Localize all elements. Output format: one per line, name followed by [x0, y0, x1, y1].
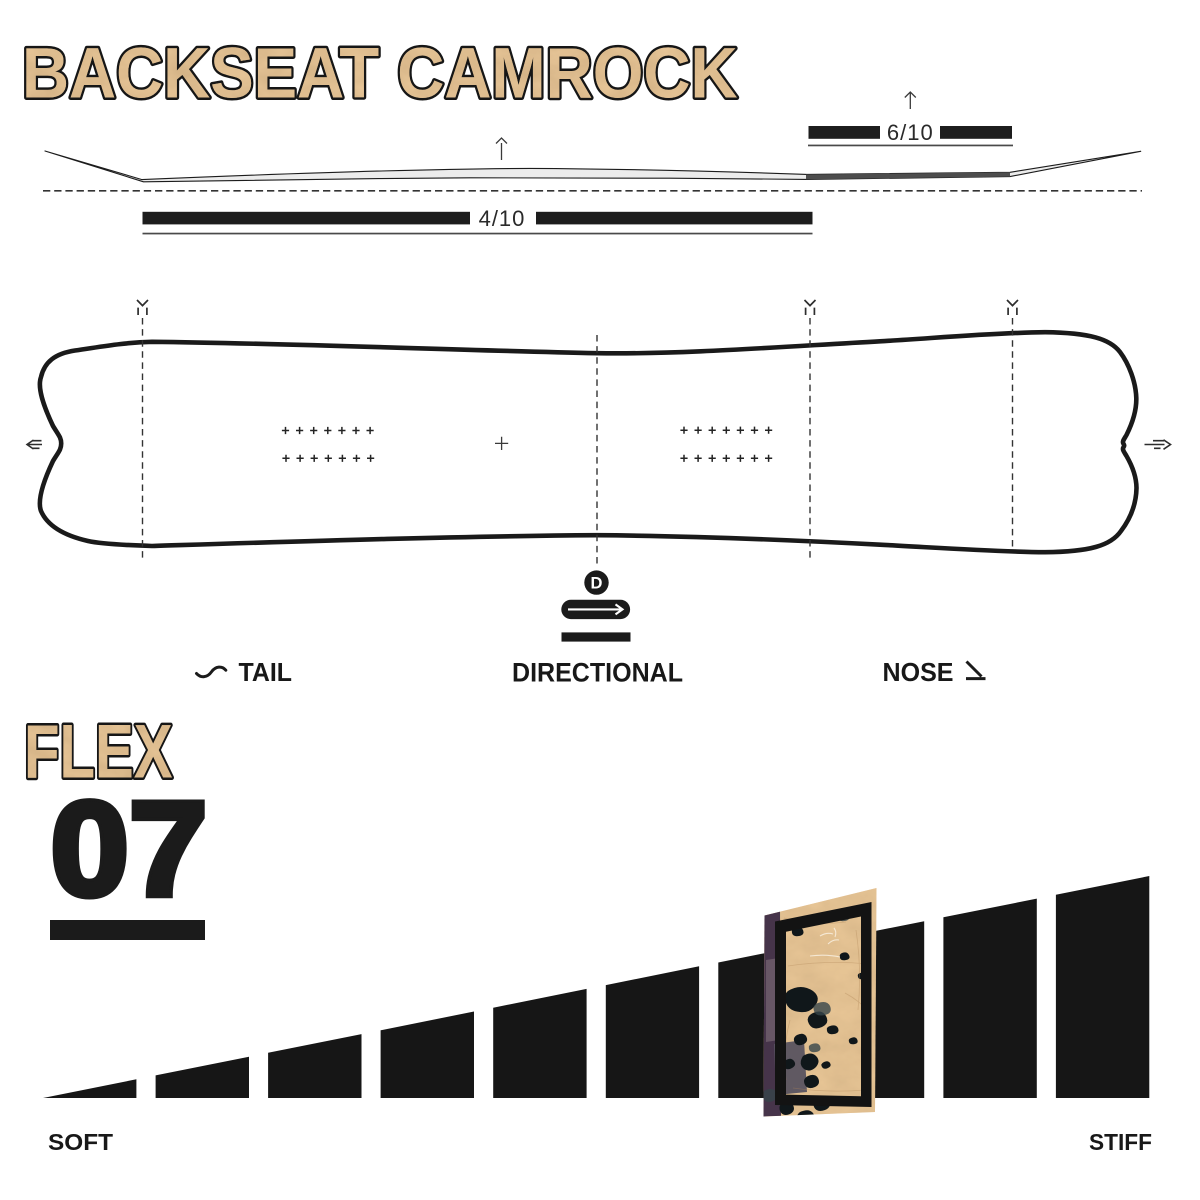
svg-text:DIRECTIONAL: DIRECTIONAL	[512, 657, 683, 687]
svg-text:NOSE: NOSE	[883, 659, 954, 687]
svg-text:STIFF: STIFF	[1089, 1129, 1152, 1155]
svg-text:TAIL: TAIL	[239, 659, 293, 687]
svg-text:07: 07	[51, 775, 208, 924]
svg-text:6/10: 6/10	[887, 120, 934, 145]
svg-text:SOFT: SOFT	[48, 1129, 114, 1155]
svg-text:4/10: 4/10	[479, 206, 526, 231]
svg-text:D: D	[591, 575, 603, 593]
